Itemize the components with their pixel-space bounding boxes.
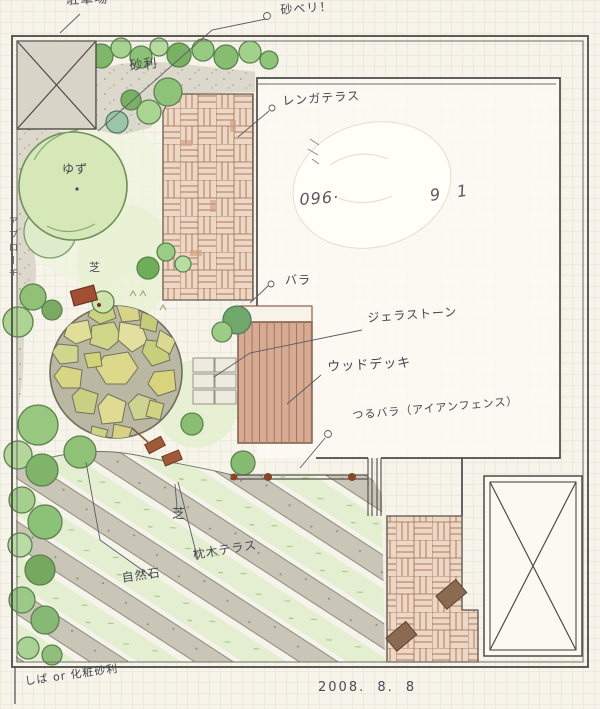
label-lawn: 芝 bbox=[172, 508, 186, 521]
gera-stone-paving bbox=[193, 358, 236, 404]
hedge-row bbox=[89, 38, 278, 69]
label-gravel: 砂利 bbox=[129, 57, 158, 73]
label-rose: バラ bbox=[285, 274, 311, 286]
label-phone-prefix: 096· bbox=[299, 189, 340, 208]
label-parking: 駐車場 bbox=[66, 0, 108, 7]
label-yuzu-tree: ゆず bbox=[62, 163, 88, 175]
parking-stall-box bbox=[17, 41, 96, 129]
label-approach: アプローチ bbox=[6, 216, 16, 281]
label-lawn-upper: 芝 bbox=[89, 262, 101, 273]
garden-plan-page: 駐車場 砂ベリ！ 砂利 レンガテラス バラ ジェラストーン ウッドデッキ つるバ… bbox=[0, 0, 600, 709]
label-edge-note: 砂ベリ！ bbox=[280, 0, 333, 16]
label-date: 2008. 8. 8 bbox=[318, 681, 416, 694]
carport-box bbox=[484, 476, 582, 656]
